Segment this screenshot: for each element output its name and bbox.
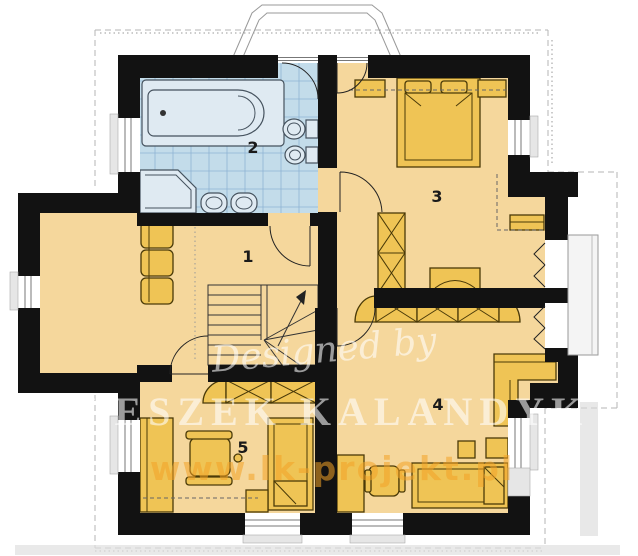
washbasin <box>201 193 227 213</box>
nightstand <box>478 80 506 97</box>
floor-plan-screenshot: 1 2 3 4 5 Designed by LESZEK KALANDYK ww… <box>0 0 638 556</box>
window <box>118 118 140 172</box>
room-label-2: 2 <box>247 138 258 157</box>
ground-band <box>15 545 620 555</box>
watermark-designer-name: LESZEK KALANDYK <box>81 389 589 434</box>
dresser <box>430 268 480 290</box>
wardrobe <box>378 213 405 293</box>
double-bed <box>397 78 480 167</box>
room-label-3: 3 <box>431 187 442 206</box>
tub-faucet-icon <box>160 110 166 116</box>
window <box>18 276 40 308</box>
hall-cabinets <box>141 222 173 304</box>
bathtub <box>142 80 284 146</box>
window <box>352 513 403 535</box>
bidet <box>285 146 318 164</box>
bay-roof-outline <box>233 5 401 57</box>
window <box>508 120 530 155</box>
room-label-1: 1 <box>242 247 253 266</box>
floor-plan-canvas: 1 2 3 4 5 Designed by LESZEK KALANDYK ww… <box>0 0 638 556</box>
balcony <box>568 235 598 355</box>
window <box>245 513 300 535</box>
alcove-floor <box>40 213 140 373</box>
radiator-shelf <box>510 215 544 230</box>
toilet <box>283 119 318 139</box>
watermark-website: www.lk-projekt.pl <box>150 449 514 488</box>
washbasin <box>231 193 257 213</box>
nightstand <box>246 490 268 512</box>
